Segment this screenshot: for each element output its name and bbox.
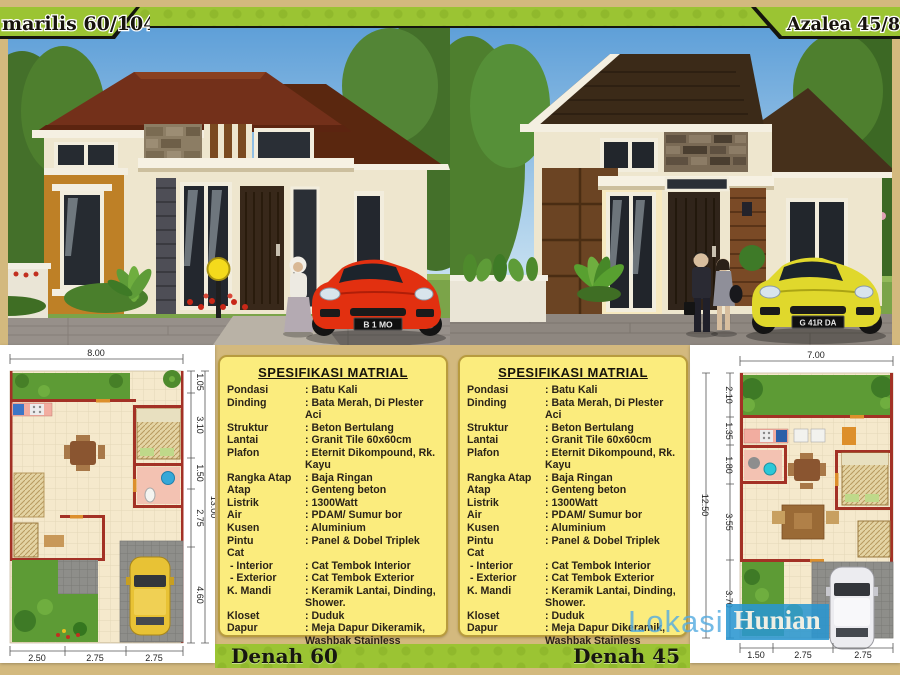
dim-bottom-1: 2.50	[28, 653, 46, 663]
spec-label: Cat	[467, 547, 543, 560]
spec-label: Struktur	[467, 422, 543, 435]
spec-row: Rangka Atap : Baja Ringan	[467, 472, 679, 485]
spec-label: Lantai	[467, 434, 543, 447]
dim-side-2: 1.35	[724, 422, 734, 440]
spec-row: - Interior : Cat Tembok Interior	[467, 560, 679, 573]
spec-row: Struktur : Beton Bertulang	[467, 422, 679, 435]
dim-side-1: 1.05	[195, 373, 205, 391]
bed-master	[137, 409, 180, 459]
spec-value: : Cat Tembok Interior	[545, 560, 679, 573]
spec-rows: Pondasi : Batu Kali Dinding : Bata Merah…	[227, 384, 439, 660]
spec-row: Lantai : Granit Tile 60x60cm	[227, 434, 439, 447]
spec-row: - Exterior : Cat Tembok Exterior	[467, 572, 679, 585]
house-render-left: B 1 MO	[8, 26, 450, 345]
spec-value: : Bata Merah, Di Plester Aci	[545, 397, 679, 422]
denah-label-left: Denah 60	[231, 644, 338, 668]
spec-row: Air : PDAM/ Sumur bor	[227, 509, 439, 522]
spec-row: Cat	[227, 547, 439, 560]
spec-value: : Baja Ringan	[545, 472, 679, 485]
wardrobe	[858, 521, 890, 557]
watermark-hunian: Hunian	[726, 604, 829, 640]
spec-panel-right: SPESIFIKASI MATRIAL Pondasi : Batu Kali …	[458, 355, 688, 637]
spec-row: Kusen : Aluminium	[227, 522, 439, 535]
license-plate-text: B 1 MO	[363, 320, 393, 330]
canopy-fascia	[138, 158, 354, 168]
spec-value: : Panel & Dobel Triplek	[545, 535, 679, 548]
spec-label: Pondasi	[467, 384, 543, 397]
title-banner-right: Azalea 45/87.5	[737, 7, 900, 39]
spec-row: Pintu : Panel & Dobel Triplek	[227, 535, 439, 548]
spec-value: : Cat Tembok Interior	[305, 560, 439, 573]
spec-row: Pondasi : Batu Kali	[467, 384, 679, 397]
spec-value: : Eternit Dikompound, Rk. Kayu	[545, 447, 679, 472]
dim-side-2: 3.10	[195, 416, 205, 434]
title-left-text: marilis 60/104	[2, 13, 150, 35]
planter-wall	[450, 254, 548, 322]
window-clerestory	[600, 138, 658, 172]
spec-value: : Duduk	[305, 610, 439, 623]
spec-label: Pintu	[467, 535, 543, 548]
spec-value: : Beton Bertulang	[545, 422, 679, 435]
floor-plan-left-panel: 8.00 1.05 3.10 1.50 2.75 4.60 13.00 2.50…	[0, 345, 215, 663]
spec-value: : PDAM/ Sumur bor	[545, 509, 679, 522]
dim-total: 13.00	[209, 496, 215, 519]
dim-bottom-3: 2.75	[145, 653, 163, 663]
front-door	[240, 186, 284, 310]
spec-label: Pondasi	[227, 384, 303, 397]
spec-row: - Exterior : Cat Tembok Exterior	[227, 572, 439, 585]
spec-label: Atap	[467, 484, 543, 497]
spec-label: Dinding	[227, 397, 303, 422]
spec-label: K. Mandi	[467, 585, 543, 610]
bathroom	[137, 467, 180, 504]
watermark-lokasi: Lokasi	[628, 604, 724, 640]
handbag-icon	[730, 285, 743, 303]
spec-row: Plafon : Eternit Dikompound, Rk. Kayu	[227, 447, 439, 472]
spec-row: Air : PDAM/ Sumur bor	[467, 509, 679, 522]
window-accent	[52, 184, 112, 296]
garden-bottom	[12, 560, 98, 642]
spec-value: : 1300Watt	[545, 497, 679, 510]
spec-row: Pondasi : Batu Kali	[227, 384, 439, 397]
kitchen	[12, 403, 52, 416]
spec-row: Listrik : 1300Watt	[227, 497, 439, 510]
spec-label: Listrik	[227, 497, 303, 510]
spec-label: Pintu	[227, 535, 303, 548]
spec-row: Listrik : 1300Watt	[467, 497, 679, 510]
spec-label: Air	[467, 509, 543, 522]
dim-side-3: 1.50	[195, 464, 205, 482]
spec-row: Plafon : Eternit Dikompound, Rk. Kayu	[467, 447, 679, 472]
wall-lamp-icon	[742, 202, 752, 216]
bathroom	[744, 450, 782, 480]
spec-value: : Aluminium	[545, 522, 679, 535]
spec-row: Struktur : Beton Bertulang	[227, 422, 439, 435]
kitchen	[744, 429, 825, 443]
car-topview-white	[826, 567, 878, 649]
spec-label: Rangka Atap	[467, 472, 543, 485]
door-transom	[666, 178, 728, 190]
spec-value: : Granit Tile 60x60cm	[545, 434, 679, 447]
spec-row: Atap : Genteng beton	[227, 484, 439, 497]
spec-row: Atap : Genteng beton	[467, 484, 679, 497]
spec-value: : Keramik Lantai, Dinding, Shower.	[305, 585, 439, 610]
dim-side-4: 3.55	[724, 513, 734, 531]
spec-row: Dinding : Bata Merah, Di Plester Aci	[227, 397, 439, 422]
garden-top	[741, 375, 893, 415]
dim-side-3: 1.80	[724, 456, 734, 474]
spec-value: : Genteng beton	[305, 484, 439, 497]
spec-value: : Beton Bertulang	[305, 422, 439, 435]
spec-value: : Bata Merah, Di Plester Aci	[305, 397, 439, 422]
dim-total: 12.50	[700, 494, 710, 517]
denah-label-right: Denah 45	[573, 644, 680, 668]
desk	[44, 535, 64, 547]
spec-title: SPESIFIKASI MATRIAL	[227, 365, 439, 380]
window-clerestory-left	[54, 142, 118, 168]
denah-band: Denah 60 Denah 45	[215, 644, 690, 668]
spec-row: - Interior : Cat Tembok Interior	[227, 560, 439, 573]
spec-label: Lantai	[227, 434, 303, 447]
spec-value	[305, 547, 439, 560]
spec-value: : Genteng beton	[545, 484, 679, 497]
window-clerestory-center	[254, 128, 314, 162]
spec-row: Kusen : Aluminium	[467, 522, 679, 535]
spec-title: SPESIFIKASI MATRIAL	[467, 365, 679, 380]
spec-label: Kloset	[467, 610, 543, 623]
louver-column	[156, 178, 176, 314]
spec-label: Plafon	[467, 447, 543, 472]
dim-side-5: 4.60	[195, 586, 205, 604]
carport	[120, 541, 183, 642]
spec-panel-left: SPESIFIKASI MATRIAL Pondasi : Batu Kali …	[218, 355, 448, 637]
spec-value	[545, 547, 679, 560]
spec-value: : Cat Tembok Exterior	[305, 572, 439, 585]
stone-veneer	[664, 132, 748, 172]
spec-value: : Batu Kali	[305, 384, 439, 397]
dim-top: 8.00	[87, 348, 105, 358]
wardrobe	[14, 523, 38, 557]
spec-label: - Exterior	[467, 572, 543, 585]
floor-plan-left: 8.00 1.05 3.10 1.50 2.75 4.60 13.00 2.50…	[0, 345, 215, 663]
spec-label: - Interior	[467, 560, 543, 573]
dim-bottom-2: 2.75	[794, 650, 812, 660]
brochure-poster: B 1 MO	[0, 0, 900, 675]
spec-row: Pintu : Panel & Dobel Triplek	[467, 535, 679, 548]
spec-label: Kusen	[467, 522, 543, 535]
house-render-right: G 41R DA	[450, 26, 892, 345]
potted-plant	[739, 245, 765, 271]
spec-value: : Batu Kali	[545, 384, 679, 397]
spec-value: : Eternit Dikompound, Rk. Kayu	[305, 447, 439, 472]
spec-value: : Panel & Dobel Triplek	[305, 535, 439, 548]
title-right-text: Azalea 45/87.5	[786, 15, 900, 35]
spec-label: K. Mandi	[227, 585, 303, 610]
spec-row: K. Mandi : Keramik Lantai, Dinding, Show…	[227, 585, 439, 610]
spec-label: - Exterior	[227, 572, 303, 585]
spec-label: - Interior	[227, 560, 303, 573]
spec-row: Kloset : Duduk	[227, 610, 439, 623]
spec-value: : Cat Tembok Exterior	[545, 572, 679, 585]
dim-bottom-2: 2.75	[86, 653, 104, 663]
spec-value: : 1300Watt	[305, 497, 439, 510]
spec-label: Air	[227, 509, 303, 522]
spec-label: Dinding	[467, 397, 543, 422]
dim-bottom-3: 2.75	[854, 650, 872, 660]
window-tall	[180, 182, 232, 310]
spec-row: Dinding : Bata Merah, Di Plester Aci	[467, 397, 679, 422]
briefcase-icon	[684, 302, 695, 315]
license-plate-text: G 41R DA	[800, 319, 837, 328]
title-banner-left: marilis 60/104	[0, 7, 150, 39]
spec-label: Listrik	[467, 497, 543, 510]
dim-bottom-1: 1.50	[747, 650, 765, 660]
spec-value: : PDAM/ Sumur bor	[305, 509, 439, 522]
bed-master	[842, 453, 888, 505]
spec-value: : Granit Tile 60x60cm	[305, 434, 439, 447]
spec-label: Kusen	[227, 522, 303, 535]
spec-label: Cat	[227, 547, 303, 560]
spec-value: : Baja Ringan	[305, 472, 439, 485]
watermark: Lokasi Hunian	[628, 604, 829, 640]
spec-row: Rangka Atap : Baja Ringan	[227, 472, 439, 485]
spec-row: Cat	[467, 547, 679, 560]
car-topview-yellow	[126, 557, 174, 635]
dim-side-1: 2.10	[724, 386, 734, 404]
dim-top: 7.00	[807, 350, 825, 360]
sofa	[14, 473, 44, 517]
spec-label: Plafon	[227, 447, 303, 472]
spec-row: Lantai : Granit Tile 60x60cm	[467, 434, 679, 447]
spec-label: Atap	[227, 484, 303, 497]
spec-label: Kloset	[227, 610, 303, 623]
dim-side-4: 2.75	[195, 509, 205, 527]
spec-value: : Aluminium	[305, 522, 439, 535]
spec-label: Struktur	[227, 422, 303, 435]
spec-label: Rangka Atap	[227, 472, 303, 485]
